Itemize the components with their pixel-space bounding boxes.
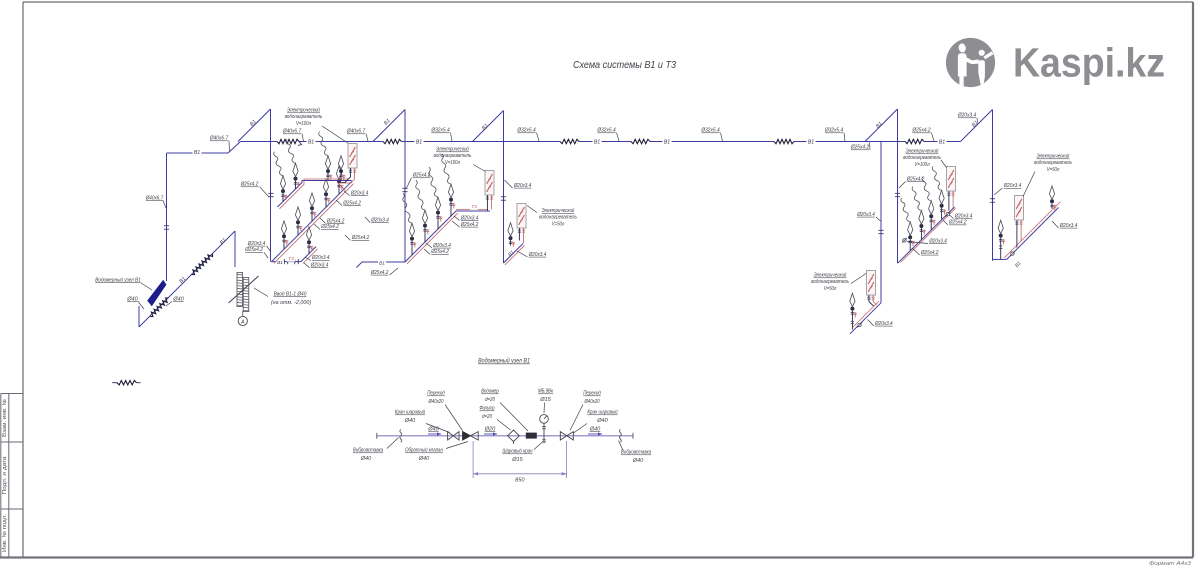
svg-text:Ø25х4.2: Ø25х4.2 [370, 270, 389, 276]
svg-text:Вибровставка: Вибровставка [353, 448, 383, 454]
svg-text:Ø20х3.4: Ø20х3.4 [528, 252, 546, 258]
svg-text:В1: В1 [939, 140, 945, 146]
svg-text:Электрический: Электрический [542, 207, 575, 214]
svg-text:Инв. № подл.: Инв. № подл. [2, 514, 8, 552]
svg-text:Ввод В1-1 Ø40: Ввод В1-1 Ø40 [274, 291, 308, 297]
svg-text:В1: В1 [416, 140, 422, 146]
svg-text:Ø25х4.2: Ø25х4.2 [430, 249, 449, 255]
svg-text:Ø15: Ø15 [511, 457, 523, 463]
svg-text:Ø40х6.7: Ø40х6.7 [282, 129, 302, 135]
svg-text:V=50л: V=50л [552, 221, 565, 227]
svg-text:Ø40х6.7: Ø40х6.7 [209, 136, 229, 142]
svg-text:Вибровставка: Вибровставка [621, 450, 651, 456]
svg-text:МБ.9Вк: МБ.9Вк [538, 389, 553, 395]
svg-text:Электрический: Электрический [287, 107, 320, 114]
svg-text:Ø20х3.4: Ø20х3.4 [513, 183, 531, 189]
svg-text:V=100л: V=100л [914, 162, 930, 168]
svg-text:Ø20х3.4: Ø20х3.4 [856, 212, 874, 218]
svg-text:В1: В1 [594, 140, 600, 146]
svg-text:Переход: Переход [583, 391, 601, 397]
svg-text:Т3: Т3 [471, 204, 477, 210]
svg-text:Ø40: Ø40 [126, 296, 138, 302]
svg-text:Ø20х3.4: Ø20х3.4 [350, 190, 368, 196]
svg-text:В1: В1 [194, 150, 200, 156]
svg-text:V=50л: V=50л [824, 286, 837, 292]
svg-text:Т3: Т3 [288, 256, 294, 262]
svg-text:Ø32х5.4: Ø32х5.4 [431, 128, 450, 134]
svg-text:Ø20: Ø20 [484, 426, 496, 432]
svg-text:Ø20х3.4: Ø20х3.4 [432, 243, 450, 249]
svg-text:Ø25х4.2: Ø25х4.2 [244, 247, 263, 253]
svg-text:водонагреватель: водонагреватель [903, 155, 941, 161]
svg-text:Водомерный узел В1: Водомерный узел В1 [95, 276, 140, 283]
svg-text:Ø40: Ø40 [427, 426, 439, 432]
svg-text:Ø25х4.2: Ø25х4.2 [342, 200, 361, 206]
svg-text:Ø20х3.4: Ø20х3.4 [874, 321, 892, 327]
svg-text:В1: В1 [308, 140, 314, 146]
svg-text:Переход: Переход [427, 391, 445, 397]
svg-text:Ø20х3.4: Ø20х3.4 [1003, 183, 1021, 189]
svg-text:Ø20х3.4: Ø20х3.4 [954, 214, 972, 220]
svg-text:Ø25х4.2: Ø25х4.2 [850, 145, 870, 151]
svg-text:850: 850 [515, 478, 525, 484]
svg-text:Ø40х6.7: Ø40х6.7 [145, 195, 164, 201]
svg-text:В1: В1 [664, 140, 670, 146]
svg-text:Ø40: Ø40 [172, 296, 184, 302]
svg-text:Ø32х5.4: Ø32х5.4 [597, 128, 616, 134]
svg-text:Ø20х3.4: Ø20х3.4 [957, 113, 976, 119]
svg-text:водонагреватель: водонагреватель [539, 215, 577, 221]
svg-text:Ø40х6.7: Ø40х6.7 [346, 129, 366, 135]
svg-text:Ø32х5.4: Ø32х5.4 [517, 128, 536, 134]
svg-text:V=100л: V=100л [445, 160, 461, 166]
svg-text:водонагреватель: водонагреватель [811, 279, 849, 285]
svg-text:Ø25х4.2: Ø25х4.2 [320, 224, 339, 230]
svg-text:d=20: d=20 [485, 397, 496, 403]
svg-text:(на отм. -2,000): (на отм. -2,000) [271, 300, 311, 306]
svg-text:Ø20х3.4: Ø20х3.4 [310, 262, 328, 268]
svg-text:Ø20х3.4: Ø20х3.4 [247, 241, 265, 247]
svg-text:В1: В1 [379, 261, 385, 267]
svg-text:Ø25х4.2: Ø25х4.2 [948, 220, 967, 226]
svg-text:Схема системы В1 и Т3: Схема системы В1 и Т3 [573, 60, 676, 71]
svg-text:V=50л: V=50л [1047, 167, 1060, 173]
svg-text:Ø40х20: Ø40х20 [428, 399, 445, 405]
svg-text:V=100л: V=100л [296, 121, 312, 127]
svg-text:водонагреватель: водонагреватель [1034, 160, 1072, 166]
svg-text:В1: В1 [277, 260, 283, 266]
svg-text:Ø40: Ø40 [589, 426, 601, 432]
svg-text:Электрический: Электрический [1037, 153, 1070, 160]
svg-text:Шаровый кран: Шаровый кран [502, 448, 532, 455]
svg-text:Фильтр: Фильтр [479, 406, 494, 412]
svg-text:Ø20х3.4: Ø20х3.4 [460, 215, 478, 221]
svg-text:Ø32х5.4: Ø32х5.4 [701, 128, 720, 134]
svg-text:Ø40: Ø40 [632, 458, 644, 464]
svg-text:водонагреватель: водонагреватель [285, 114, 323, 120]
svg-text:Ø25х4.2: Ø25х4.2 [412, 173, 431, 179]
svg-text:Электрический: Электрический [906, 148, 939, 155]
svg-text:Кран шаровый: Кран шаровый [587, 409, 617, 416]
svg-text:Ø25х4.2: Ø25х4.2 [912, 128, 932, 134]
svg-text:Ø20х3.4: Ø20х3.4 [1059, 223, 1077, 229]
svg-text:Водомер: Водомер [481, 389, 499, 395]
svg-text:Ø25х4.2: Ø25х4.2 [351, 235, 370, 241]
svg-text:Ø40: Ø40 [404, 418, 416, 424]
svg-text:Обратный клапан: Обратный клапан [405, 447, 443, 454]
svg-text:Электрический: Электрический [814, 272, 847, 279]
svg-text:d=20: d=20 [482, 414, 493, 420]
svg-text:Ø25х4.2: Ø25х4.2 [460, 222, 479, 228]
svg-text:Ø15: Ø15 [539, 397, 551, 403]
svg-text:Ø40: Ø40 [360, 456, 372, 462]
svg-text:Водомерный узел В1: Водомерный узел В1 [478, 357, 530, 365]
svg-text:Ø32х5.4: Ø32х5.4 [824, 128, 843, 134]
svg-text:Ø20х3.4: Ø20х3.4 [928, 238, 946, 244]
svg-text:Ø25х4.2: Ø25х4.2 [920, 250, 939, 256]
svg-text:Ø20х3.4: Ø20х3.4 [370, 217, 388, 223]
svg-text:Ø40: Ø40 [596, 418, 608, 424]
svg-text:Kaspi.kz: Kaspi.kz [1013, 40, 1165, 86]
svg-text:В1: В1 [808, 140, 814, 146]
svg-text:Ø40: Ø40 [418, 456, 430, 462]
svg-text:Формат А4х3: Формат А4х3 [1149, 561, 1192, 567]
svg-text:водонагреватель: водонагреватель [434, 153, 472, 159]
svg-text:А: А [240, 319, 245, 325]
svg-text:Ø25х4.2: Ø25х4.2 [240, 182, 259, 188]
svg-text:Взам. инв. №: Взам. инв. № [2, 399, 8, 437]
svg-text:Ø20х3.4: Ø20х3.4 [311, 255, 329, 261]
svg-text:Ø40х20: Ø40х20 [584, 399, 601, 405]
svg-text:Электрический: Электрический [436, 146, 469, 153]
svg-text:Кран шаровый: Кран шаровый [395, 409, 425, 416]
svg-text:Подп. и дата: Подп. и дата [2, 456, 8, 494]
